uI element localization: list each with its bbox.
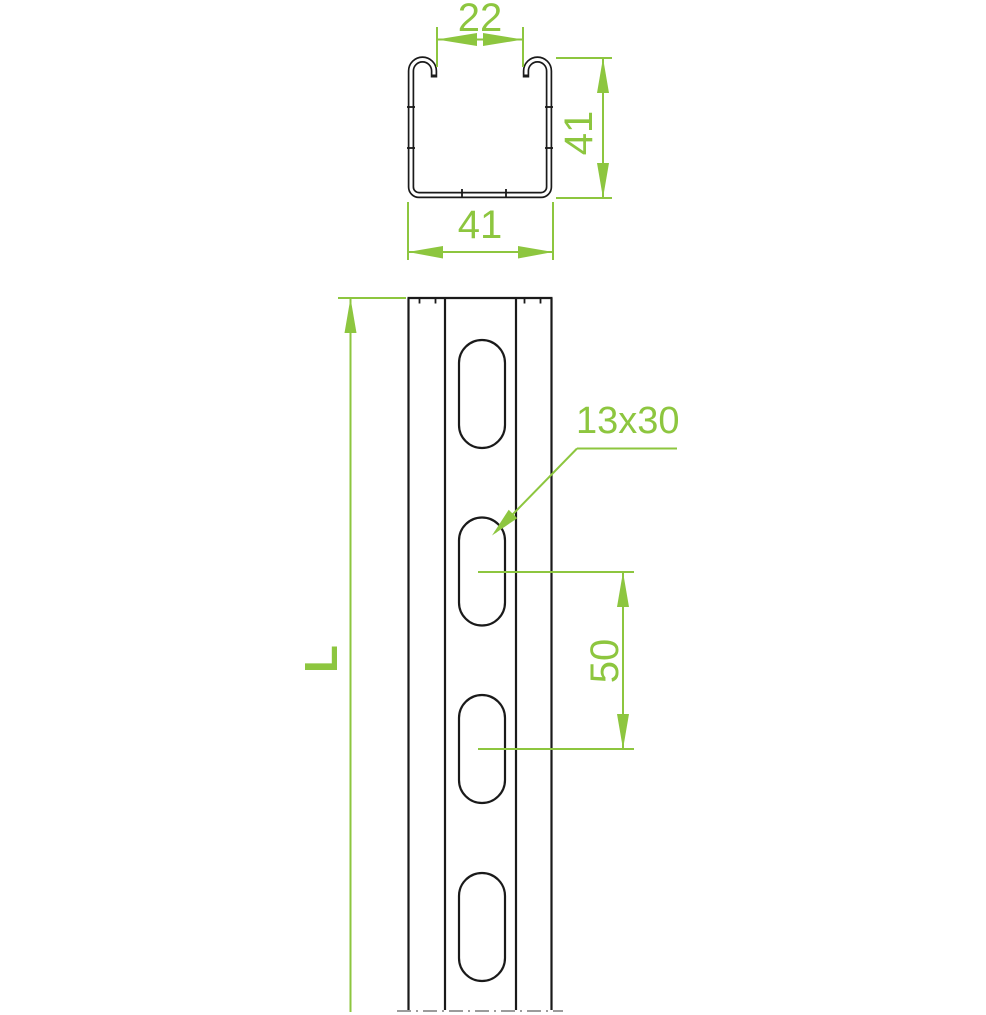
arrowhead-up-icon bbox=[345, 298, 357, 333]
dim-slot-pitch: 50 bbox=[478, 572, 634, 749]
arrowhead-right-icon bbox=[518, 246, 553, 259]
technical-drawing: 22 41 41 bbox=[0, 0, 986, 1015]
front-view: L 50 13x30 bbox=[295, 298, 680, 1012]
arrowhead-up-icon bbox=[597, 58, 609, 93]
slot-hole-1 bbox=[459, 340, 505, 448]
dim-height: 41 bbox=[556, 58, 612, 198]
arrowhead-down-icon bbox=[617, 714, 629, 749]
dim-opening-width: 22 bbox=[437, 0, 523, 67]
channel-profile-outline bbox=[411, 60, 549, 196]
technical-drawing-page: 22 41 41 bbox=[0, 0, 986, 1015]
dim-slot-pitch-label: 50 bbox=[583, 639, 627, 684]
slot-hole-4 bbox=[459, 873, 505, 981]
channel-profile-core bbox=[411, 60, 549, 196]
slot-size-callout: 13x30 bbox=[492, 400, 680, 536]
dim-length-label: L bbox=[295, 645, 347, 673]
slot-size-label: 13x30 bbox=[576, 400, 680, 442]
dim-length: L bbox=[295, 298, 406, 1012]
dim-height-label: 41 bbox=[557, 111, 601, 156]
arrowhead-down-icon bbox=[597, 163, 609, 198]
dim-width-label: 41 bbox=[458, 203, 503, 247]
arrowhead-up-icon bbox=[617, 572, 629, 607]
dim-width: 41 bbox=[408, 202, 553, 260]
arrowhead-left-icon bbox=[408, 246, 443, 259]
cross-section-view: 22 41 41 bbox=[407, 0, 612, 260]
dim-opening-width-label: 22 bbox=[458, 0, 503, 40]
